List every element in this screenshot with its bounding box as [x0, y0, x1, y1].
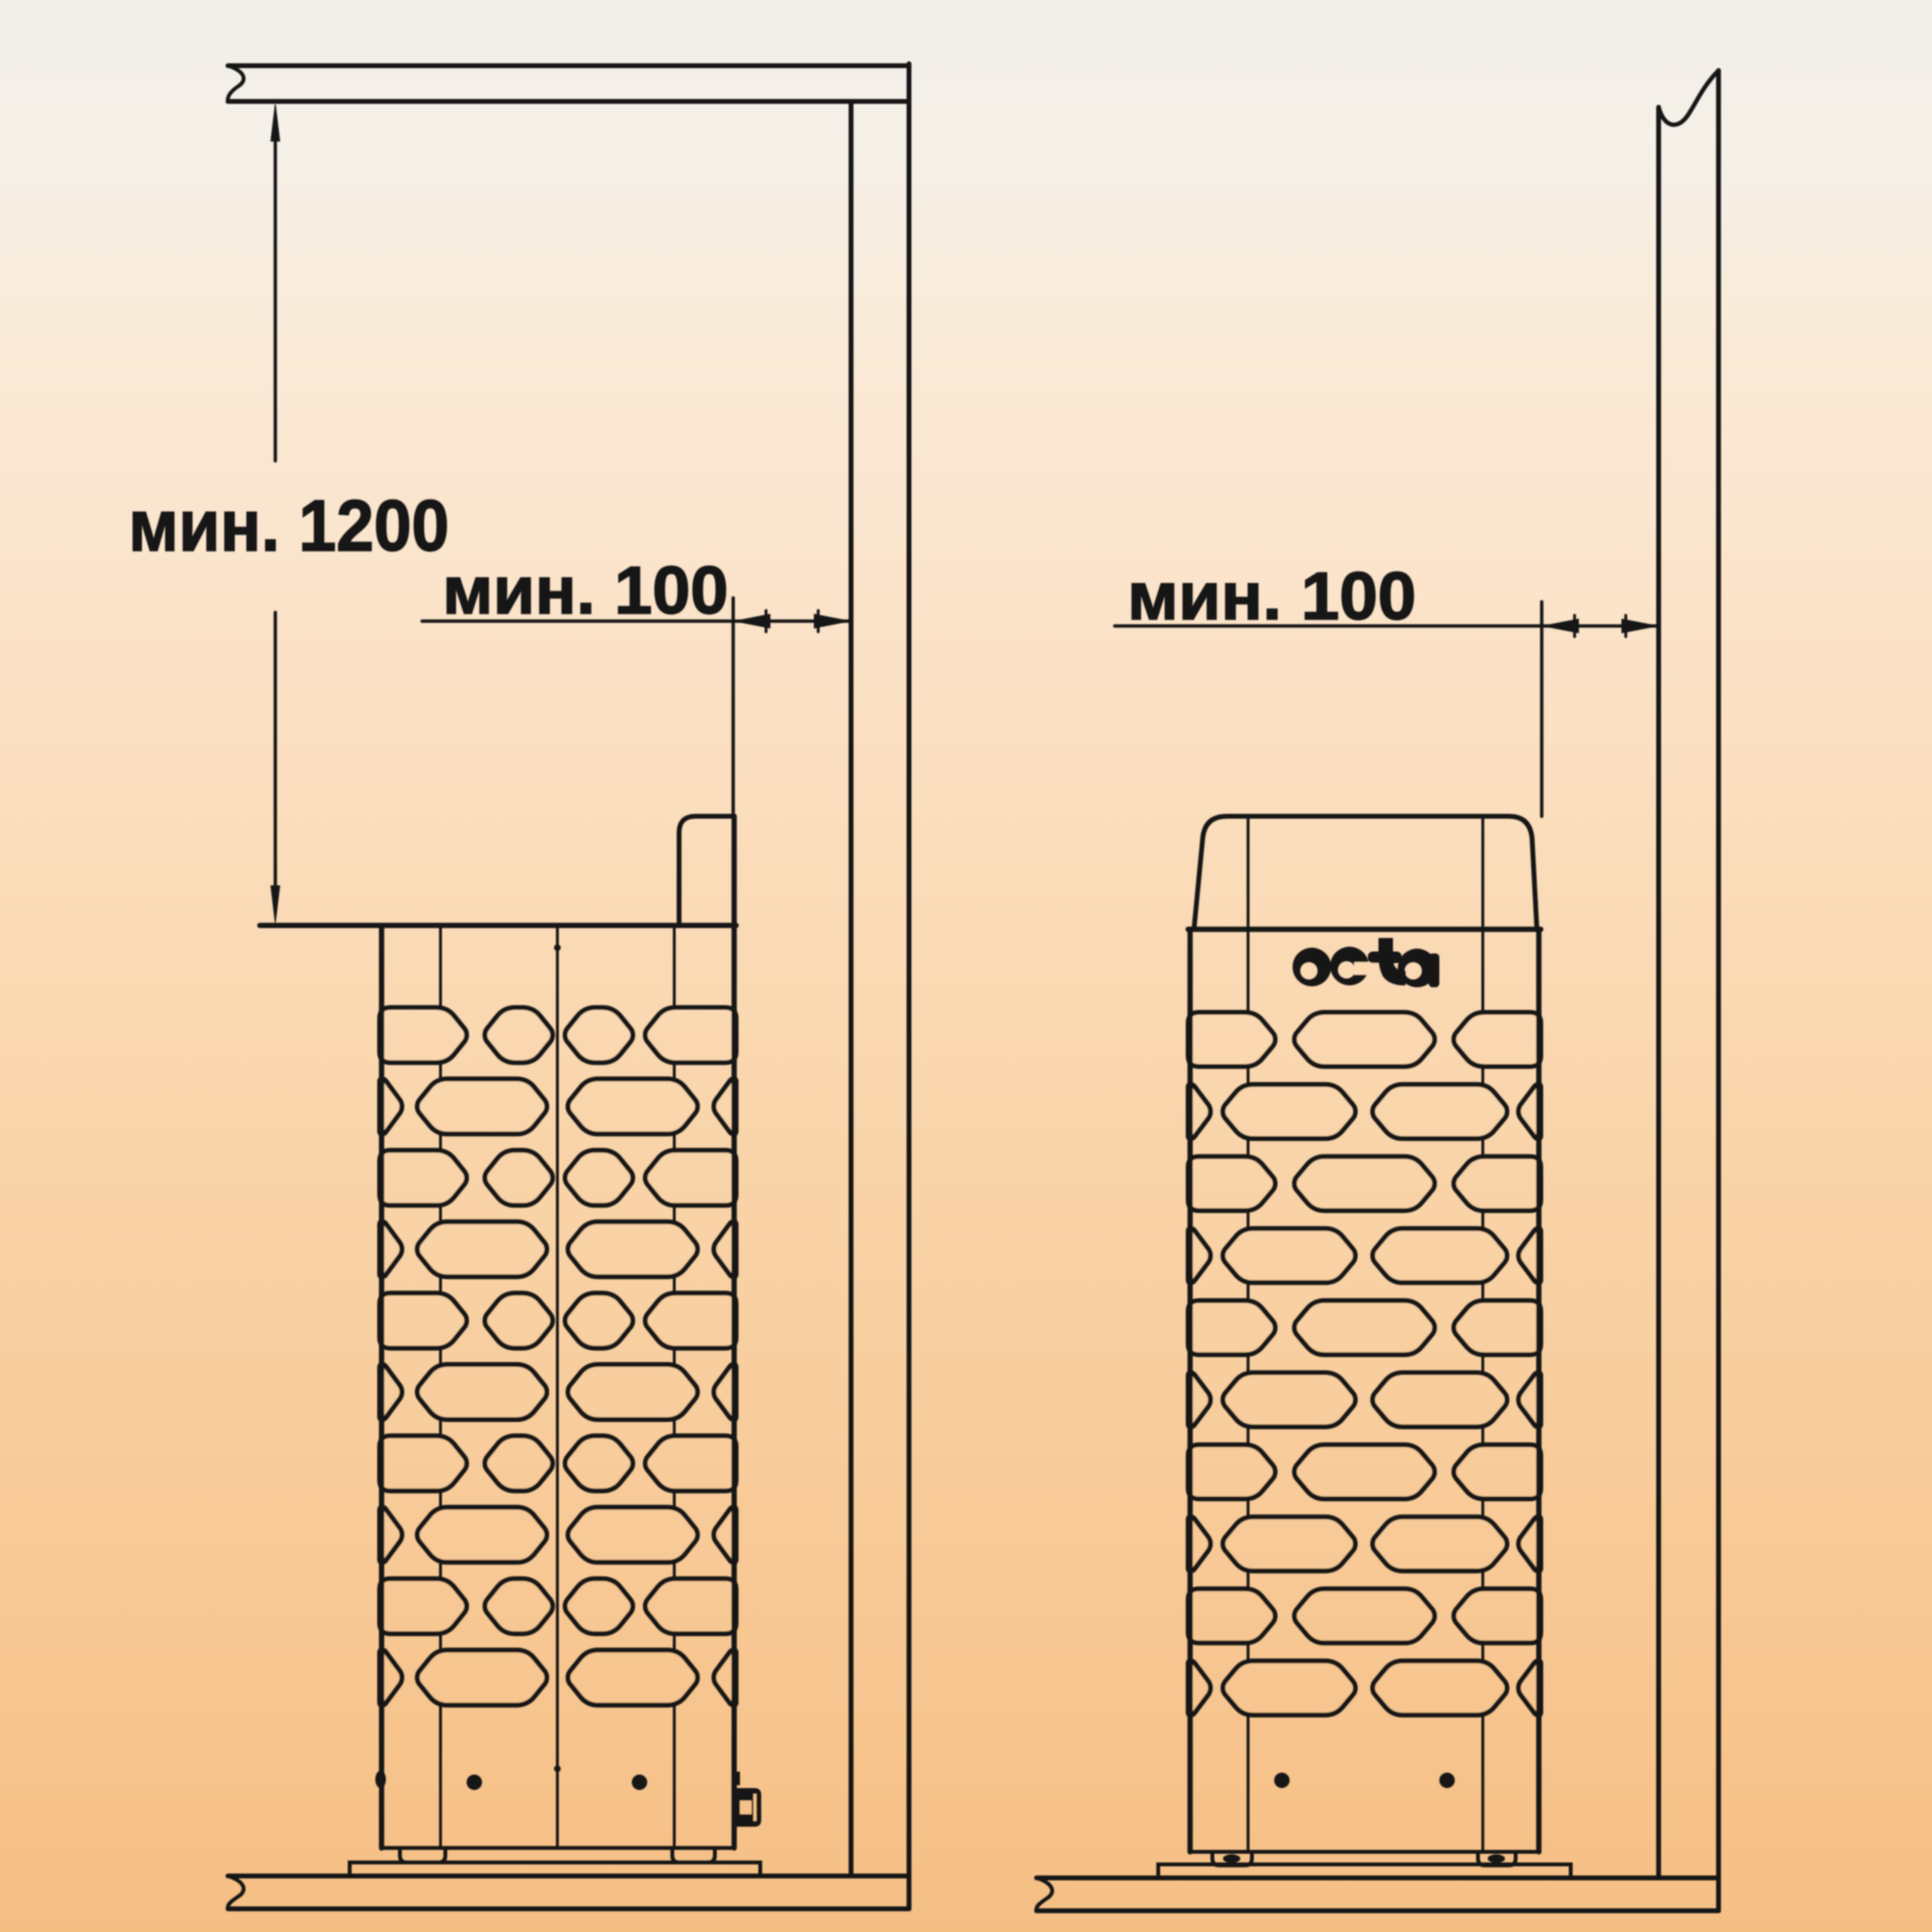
- svg-text:мин. 100: мин. 100: [1127, 558, 1416, 634]
- svg-text:мин. 100: мин. 100: [442, 553, 728, 628]
- svg-text:мин. 1200: мин. 1200: [128, 485, 449, 566]
